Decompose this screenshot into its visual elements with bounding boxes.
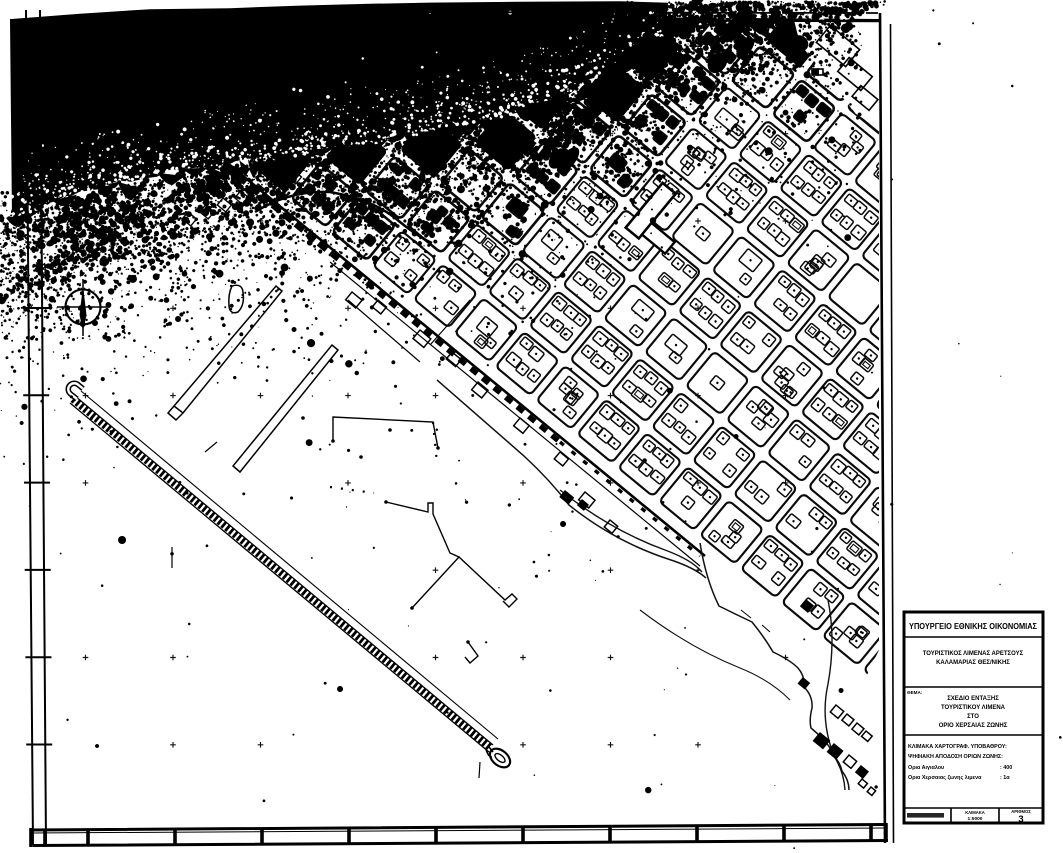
svg-text:ΨΗΦΙΑΚΗ ΑΠΟΔΟΣΗ ΟΡΙΩΝ ΖΩΝΗΣ:: ΨΗΦΙΑΚΗ ΑΠΟΔΟΣΗ ΟΡΙΩΝ ΖΩΝΗΣ:	[908, 754, 1003, 760]
svg-text:ΤΟΥΡΙΣΤΙΚΟΣ ΛΙΜΕΝΑΣ ΑΡΕΤΣΟΥΣ: ΤΟΥΡΙΣΤΙΚΟΣ ΛΙΜΕΝΑΣ ΑΡΕΤΣΟΥΣ	[923, 651, 1024, 657]
svg-text:ΣΧΕΔΙΟ ΕΝΤΑΞΗΣ: ΣΧΕΔΙΟ ΕΝΤΑΞΗΣ	[947, 696, 999, 702]
svg-text:ΘΕΜΑ:: ΘΕΜΑ:	[907, 690, 923, 695]
svg-text:ΟΡΙΟ ΧΕΡΣΑΙΑΣ ΖΩΝΗΣ: ΟΡΙΟ ΧΕΡΣΑΙΑΣ ΖΩΝΗΣ	[939, 723, 1008, 729]
svg-text:ΣΤΟ: ΣΤΟ	[967, 714, 979, 720]
svg-text:3: 3	[1018, 814, 1023, 825]
svg-text:ΚΛΙΜΑΚΑ ΧΑΡΤΟΓΡΑΦ. ΥΠΟΒΑΘΡΟΥ:: ΚΛΙΜΑΚΑ ΧΑΡΤΟΓΡΑΦ. ΥΠΟΒΑΘΡΟΥ:	[908, 744, 1007, 750]
svg-text:ΚΑΛΑΜΑΡΙΑΣ ΘΕΣ/ΝΙΚΗΣ: ΚΑΛΑΜΑΡΙΑΣ ΘΕΣ/ΝΙΚΗΣ	[936, 660, 1010, 666]
svg-text:ΤΟΥΡΙΣΤΙΚΟΥ ΛΙΜΕΝΑ: ΤΟΥΡΙΣΤΙΚΟΥ ΛΙΜΕΝΑ	[941, 705, 1006, 711]
svg-text:ΚΛΙΜΑΚΑ: ΚΛΙΜΑΚΑ	[965, 810, 985, 815]
svg-text:Ορια Χερσαιας ζωνης λιμενα: Ορια Χερσαιας ζωνης λιμενα	[908, 775, 982, 781]
svg-text:: 400: : 400	[1000, 765, 1012, 771]
svg-text:ΥΠΟΥΡΓΕΙΟ ΕΘΝΙΚΗΣ ΟΙΚΟΝΟΜΙΑΣ: ΥΠΟΥΡΓΕΙΟ ΕΘΝΙΚΗΣ ΟΙΚΟΝΟΜΙΑΣ	[909, 622, 1037, 631]
svg-text:1:5000: 1:5000	[968, 816, 983, 822]
svg-text:: 1α: : 1α	[1000, 775, 1010, 781]
svg-text:Ορια Αιγιαλου: Ορια Αιγιαλου	[908, 765, 944, 771]
